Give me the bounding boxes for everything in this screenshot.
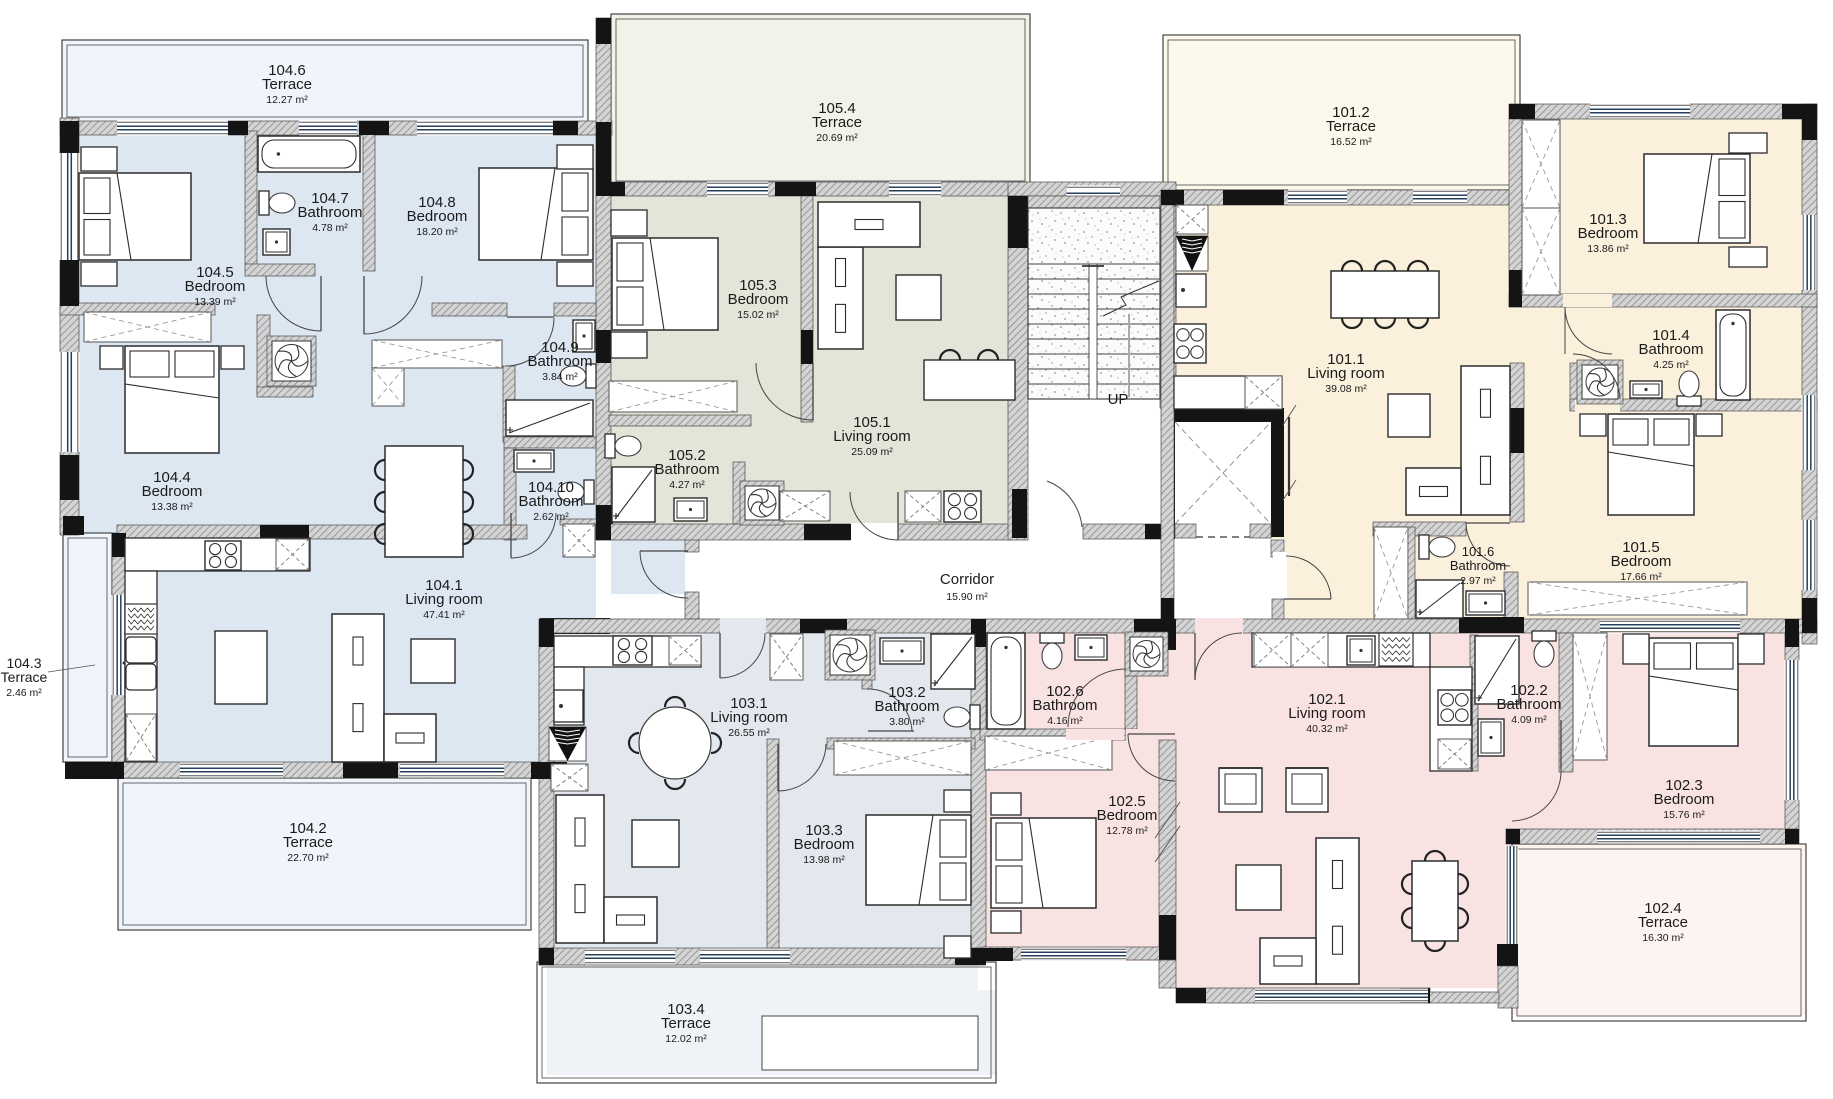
svg-text:2.46 m²: 2.46 m² [6, 687, 42, 699]
svg-text:13.38 m²: 13.38 m² [151, 501, 193, 513]
svg-text:Bedroom: Bedroom [1097, 807, 1158, 824]
svg-text:16.30 m²: 16.30 m² [1642, 932, 1684, 944]
svg-text:Terrace: Terrace [262, 76, 312, 93]
svg-text:2.97 m²: 2.97 m² [1460, 575, 1496, 587]
svg-text:18.20 m²: 18.20 m² [416, 226, 458, 238]
svg-text:15.02 m²: 15.02 m² [737, 309, 779, 321]
svg-text:12.78 m²: 12.78 m² [1106, 825, 1148, 837]
svg-text:20.69 m²: 20.69 m² [816, 132, 858, 144]
svg-text:Bathroom: Bathroom [518, 493, 583, 510]
svg-text:Living room: Living room [1288, 705, 1366, 722]
svg-text:Bathroom: Bathroom [1496, 696, 1561, 713]
svg-text:4.16 m²: 4.16 m² [1047, 715, 1083, 727]
svg-text:12.02 m²: 12.02 m² [665, 1033, 707, 1045]
svg-text:Terrace: Terrace [1638, 914, 1688, 931]
svg-text:Bedroom: Bedroom [794, 836, 855, 853]
svg-text:Bathroom: Bathroom [1032, 697, 1097, 714]
svg-text:40.32 m²: 40.32 m² [1306, 723, 1348, 735]
svg-text:Bedroom: Bedroom [728, 291, 789, 308]
svg-text:Living room: Living room [1307, 365, 1385, 382]
svg-text:Terrace: Terrace [1326, 118, 1376, 135]
svg-text:Bedroom: Bedroom [142, 483, 203, 500]
svg-text:17.66 m²: 17.66 m² [1620, 571, 1662, 583]
svg-text:4.09 m²: 4.09 m² [1511, 714, 1547, 726]
svg-text:Living room: Living room [710, 709, 788, 726]
svg-text:39.08 m²: 39.08 m² [1325, 383, 1367, 395]
svg-text:12.27 m²: 12.27 m² [266, 94, 308, 106]
svg-text:Terrace: Terrace [812, 114, 862, 131]
svg-text:15.76 m²: 15.76 m² [1663, 809, 1705, 821]
svg-text:3.84 m²: 3.84 m² [542, 371, 578, 383]
svg-text:2.62 m²: 2.62 m² [533, 511, 569, 523]
svg-text:Terrace: Terrace [283, 834, 333, 851]
svg-text:Living room: Living room [405, 591, 483, 608]
svg-text:Bathroom: Bathroom [1638, 341, 1703, 358]
svg-text:4.27 m²: 4.27 m² [669, 479, 705, 491]
svg-text:Bedroom: Bedroom [407, 208, 468, 225]
svg-text:3.80 m²: 3.80 m² [889, 716, 925, 728]
svg-text:15.90 m²: 15.90 m² [946, 591, 988, 603]
svg-text:26.55 m²: 26.55 m² [728, 727, 770, 739]
svg-text:101.6: 101.6 [1462, 544, 1495, 559]
svg-text:Bathroom: Bathroom [527, 353, 592, 370]
svg-text:Bedroom: Bedroom [1654, 791, 1715, 808]
svg-text:Bathroom: Bathroom [297, 204, 362, 221]
svg-text:13.98 m²: 13.98 m² [803, 854, 845, 866]
svg-text:Bathroom: Bathroom [654, 461, 719, 478]
svg-text:13.39 m²: 13.39 m² [194, 296, 236, 308]
svg-text:16.52 m²: 16.52 m² [1330, 136, 1372, 148]
svg-text:Terrace: Terrace [661, 1015, 711, 1032]
svg-text:13.86 m²: 13.86 m² [1587, 243, 1629, 255]
svg-text:22.70 m²: 22.70 m² [287, 852, 329, 864]
svg-text:Terrace: Terrace [1, 669, 48, 685]
svg-text:Bathroom: Bathroom [1450, 558, 1506, 573]
svg-text:47.41 m²: 47.41 m² [423, 609, 465, 621]
svg-text:4.78 m²: 4.78 m² [312, 222, 348, 234]
svg-text:Bedroom: Bedroom [1578, 225, 1639, 242]
svg-text:Bedroom: Bedroom [185, 278, 246, 295]
svg-text:UP: UP [1108, 391, 1129, 408]
svg-text:25.09 m²: 25.09 m² [851, 446, 893, 458]
svg-text:Living room: Living room [833, 428, 911, 445]
svg-text:Bathroom: Bathroom [874, 698, 939, 715]
svg-text:Corridor: Corridor [940, 571, 994, 588]
svg-text:Bedroom: Bedroom [1611, 553, 1672, 570]
svg-text:4.25 m²: 4.25 m² [1653, 359, 1689, 371]
